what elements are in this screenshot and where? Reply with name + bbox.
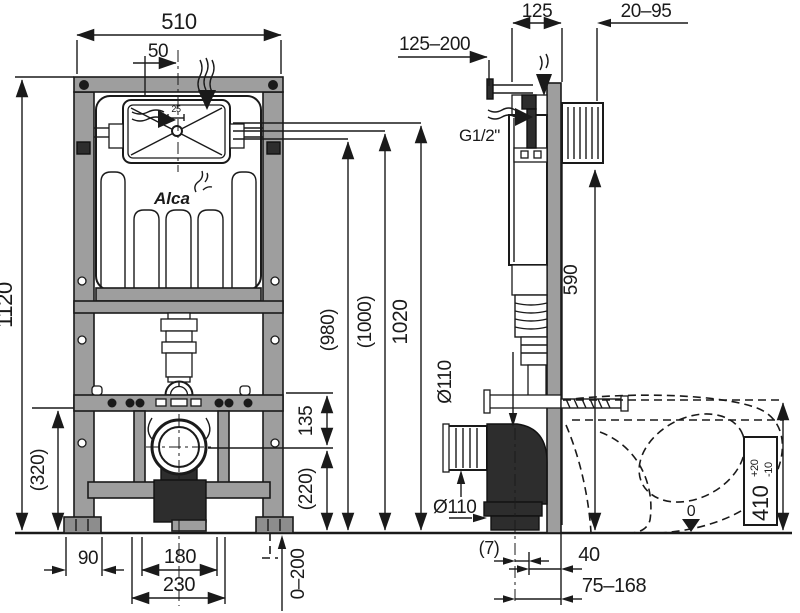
frame-post-side <box>547 83 561 533</box>
dim-410-tol-minus: -10 <box>763 462 775 477</box>
dim-1000: (1000) <box>355 296 376 349</box>
dim-135: 135 <box>296 406 317 437</box>
dim-125: 125 <box>522 1 553 22</box>
cistern-side-lower <box>512 265 547 295</box>
dim-75-168: 75–168 <box>582 575 647 597</box>
dim-125-200: 125–200 <box>399 34 470 55</box>
wc-frame-drawing: 25 Alca <box>0 0 800 613</box>
drain-bend-housing <box>154 480 206 522</box>
side-view-dimensions: 125–200 125 20–95 590 Ø110 Ø110 (7) <box>398 1 783 605</box>
bellows-section <box>515 295 547 337</box>
dim-220: (220) <box>296 468 317 510</box>
side-view-structure: G1/2" <box>443 54 784 533</box>
dim-230: 230 <box>163 574 195 596</box>
flush-plate-box <box>562 103 603 163</box>
anchor-bolt-left <box>77 142 90 154</box>
flush-pipe-front <box>161 313 197 409</box>
drain-inlet-stub <box>443 424 487 472</box>
dim-980: (980) <box>318 309 339 351</box>
strut-left <box>134 411 145 484</box>
wall-bracket <box>514 148 547 162</box>
dia-110-top-label: Ø110 <box>435 360 456 403</box>
anchor-bolt-right <box>267 142 280 154</box>
pipe-clip-right <box>240 386 250 395</box>
drain-assembly <box>146 399 212 487</box>
seat-height-box: 410 +20 -10 <box>744 437 777 525</box>
dim-20-95: 20–95 <box>621 1 672 22</box>
dim-510: 510 <box>161 9 197 34</box>
brand-logo: Alca <box>153 189 190 208</box>
dim-7: (7) <box>479 538 500 558</box>
dim-1020: 1020 <box>389 299 412 344</box>
dim-320: (320) <box>28 449 49 491</box>
dim-590: 590 <box>561 265 582 296</box>
dia-110-bottom-label: Ø110 <box>433 497 476 518</box>
window-center-knob <box>172 126 182 136</box>
floor-zero-label: 0 <box>687 503 696 520</box>
flush-drop-pipe <box>521 337 547 397</box>
dim-180: 180 <box>164 546 196 568</box>
cistern-bottom-rail <box>96 288 261 301</box>
window-adjust-dim: 25 <box>171 104 181 114</box>
mid-rail <box>74 301 283 313</box>
dim-410: 410 <box>748 485 773 521</box>
dim-40: 40 <box>578 544 600 566</box>
pipe-clip-left <box>92 386 102 395</box>
technical-drawing-page: 25 Alca <box>0 0 800 613</box>
drain-bend-plate <box>172 520 206 531</box>
dim-90: 90 <box>78 548 98 569</box>
dim-50: 50 <box>148 41 168 62</box>
corner-bolt-left <box>79 80 89 90</box>
corner-bolt-right <box>268 80 278 90</box>
thread-size-label: G1/2" <box>459 126 500 145</box>
dim-0-200: 0–200 <box>288 549 309 600</box>
dim-410-tol-plus: +20 <box>749 459 761 477</box>
dim-1120: 1120 <box>0 282 17 328</box>
